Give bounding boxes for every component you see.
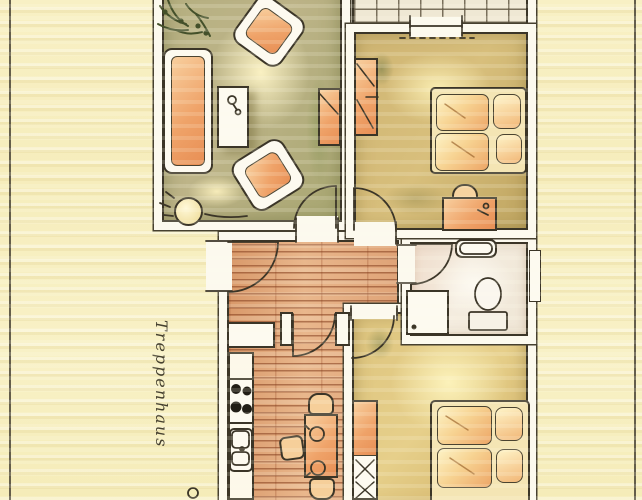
bed-1-duvet-top [436,94,489,131]
floor-lamp [174,197,203,226]
floorplan-canvas: Treppenhaus [0,0,642,500]
kitchen-counter-strip [228,352,254,500]
dining-table [304,414,338,478]
bathroom-door-gap [398,244,415,284]
wardrobe-bedroom-1 [354,58,378,136]
kitchen-upper-counter [227,322,275,348]
stove [228,378,254,424]
bed-2-pillow-top [495,407,523,441]
balcony-door-gap [410,17,462,37]
dining-chair-top [308,393,334,415]
wardrobe-bedroom-2-top [354,402,376,456]
bed-2-pillow-bottom [496,449,523,483]
bath-sink [455,239,497,258]
frame-right-line [634,0,636,500]
living-room-cabinet [318,88,341,146]
shower [406,290,449,335]
kitchen-sink [229,428,253,472]
wall-stub-right [335,312,350,346]
knob-circle [188,488,198,498]
bed-2-duvet-top [437,406,492,445]
bathroom-window [529,250,541,302]
bedroom-2-door-gap [350,305,398,319]
bed-1-pillow-bottom [496,134,522,164]
bed-1-duvet-bottom [435,133,489,171]
sofa-seat [171,56,205,166]
living-room-door-gap [296,216,338,242]
bed-1-pillow-top [493,94,521,129]
bedroom-1-door-gap [354,222,396,246]
entrance-door-gap [206,240,232,292]
staircase-area [11,0,150,500]
dining-chair-left [278,434,305,461]
dining-chair-bottom [309,478,335,500]
wall-stub-left [280,312,293,346]
desk-bedroom-1 [442,197,497,231]
coffee-table [217,86,249,148]
staircase-label: Treppenhaus [152,320,171,448]
bed-2-duvet-bottom [437,448,492,488]
